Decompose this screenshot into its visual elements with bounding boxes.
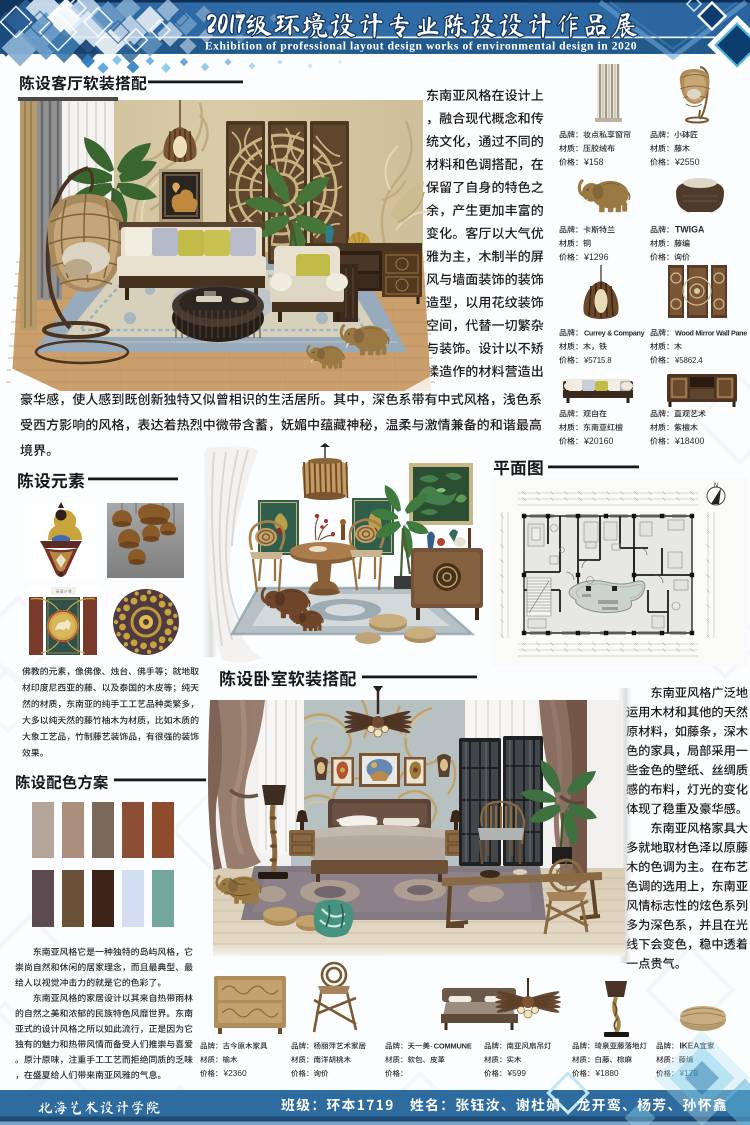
svg-text:¥2360: ¥2360 xyxy=(223,1068,247,1078)
svg-text:¥5715.8: ¥5715.8 xyxy=(584,356,612,365)
svg-text:¥20160: ¥20160 xyxy=(583,436,613,446)
svg-text:Exhibition of professional lay: Exhibition of professional layout design… xyxy=(205,40,637,53)
svg-text:¥5862.4: ¥5862.4 xyxy=(675,356,703,365)
svg-text:¥1880: ¥1880 xyxy=(595,1068,619,1078)
svg-text:¥2550: ¥2550 xyxy=(674,157,700,167)
svg-text:Currey & Company: Currey & Company xyxy=(584,329,645,338)
svg-text:Wood Mirror Wall Pane: Wood Mirror Wall Pane xyxy=(675,329,747,338)
svg-text:¥158: ¥158 xyxy=(583,157,604,167)
svg-text:¥599: ¥599 xyxy=(507,1068,527,1078)
svg-text:COMMUNE: COMMUNE xyxy=(434,1042,472,1051)
svg-text:¥18400: ¥18400 xyxy=(674,436,704,446)
svg-text:¥1296: ¥1296 xyxy=(583,252,609,262)
svg-text:TWIGA: TWIGA xyxy=(675,225,705,235)
svg-text:泰 国 沙 発: 泰 国 沙 発 xyxy=(56,589,72,594)
svg-text:N: N xyxy=(714,483,718,489)
